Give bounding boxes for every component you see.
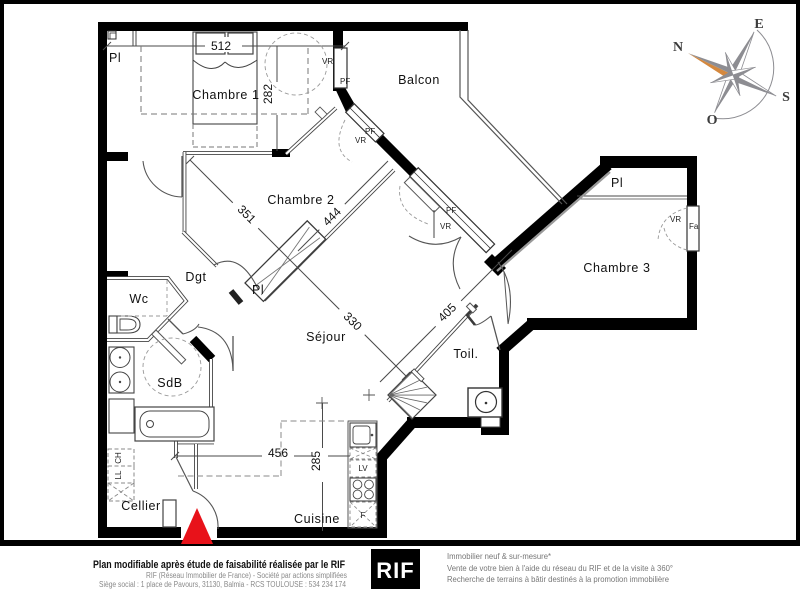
svg-text:PF: PF <box>365 127 375 136</box>
svg-text:Immobilier neuf & sur-mesure*: Immobilier neuf & sur-mesure* <box>447 551 552 561</box>
svg-text:CH: CH <box>114 452 123 464</box>
svg-text:Fa: Fa <box>689 222 699 231</box>
svg-text:Siège social : 1 place de Pavo: Siège social : 1 place de Pavours, 31130… <box>99 580 346 589</box>
svg-text:282: 282 <box>261 84 275 104</box>
svg-text:Chambre 3: Chambre 3 <box>583 261 650 275</box>
svg-text:Wc: Wc <box>129 292 148 306</box>
svg-text:E: E <box>754 17 763 32</box>
svg-text:Toil.: Toil. <box>453 347 478 361</box>
svg-text:VR: VR <box>355 136 366 145</box>
svg-text:Séjour: Séjour <box>306 330 346 344</box>
svg-text:456: 456 <box>268 446 288 460</box>
svg-text:LL: LL <box>114 470 123 479</box>
svg-text:VR: VR <box>322 57 333 66</box>
svg-text:RIF: RIF <box>376 558 414 583</box>
svg-text:Pl: Pl <box>252 283 264 297</box>
svg-text:Pl: Pl <box>611 176 623 190</box>
svg-text:F: F <box>361 511 366 520</box>
svg-text:LV: LV <box>358 464 368 473</box>
svg-text:Pl: Pl <box>109 51 121 65</box>
svg-text:285: 285 <box>309 451 323 471</box>
svg-text:Cellier: Cellier <box>121 499 161 513</box>
svg-text:O: O <box>707 113 718 128</box>
svg-text:Recherche de terrains à bâtir: Recherche de terrains à bâtir destinés à… <box>447 574 669 584</box>
svg-text:VR: VR <box>440 222 451 231</box>
svg-text:RIF (Réseau Immobilier de Fran: RIF (Réseau Immobilier de France) - Soci… <box>146 571 347 580</box>
svg-text:Balcon: Balcon <box>398 73 440 87</box>
svg-text:SdB: SdB <box>157 376 182 390</box>
svg-text:Vente de votre bien à l'aide d: Vente de votre bien à l'aide du réseau d… <box>447 563 673 573</box>
svg-text:S: S <box>782 90 790 105</box>
svg-text:Plan modifiable après étude de: Plan modifiable après étude de faisabili… <box>93 559 345 571</box>
svg-text:N: N <box>673 40 683 55</box>
svg-text:Cuisine: Cuisine <box>294 512 340 526</box>
svg-text:PF: PF <box>340 77 350 86</box>
svg-text:Chambre 2: Chambre 2 <box>267 193 334 207</box>
svg-text:Dgt: Dgt <box>185 270 206 284</box>
svg-text:512: 512 <box>211 39 231 53</box>
svg-text:Chambre 1: Chambre 1 <box>192 88 259 102</box>
svg-text:PF: PF <box>446 206 456 215</box>
svg-text:VR: VR <box>670 215 681 224</box>
